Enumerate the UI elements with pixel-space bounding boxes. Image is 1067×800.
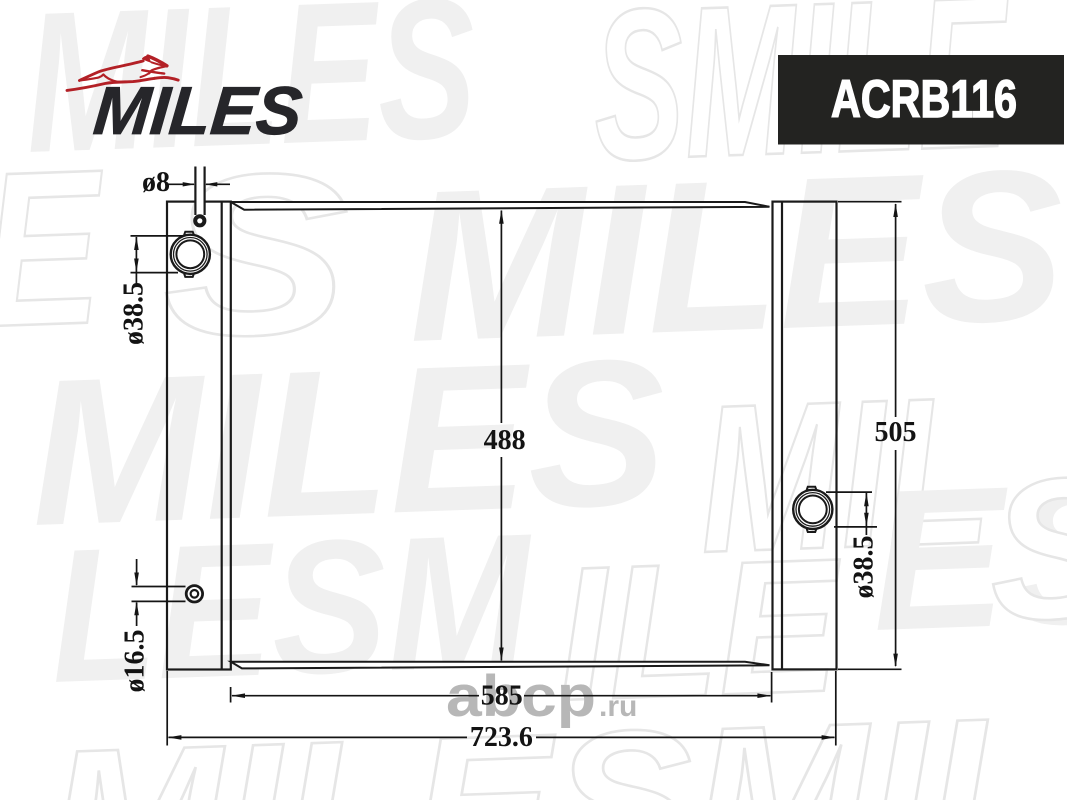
svg-text:585: 585: [481, 681, 523, 712]
svg-text:S: S: [986, 435, 1067, 663]
svg-text:ø38.5: ø38.5: [118, 282, 149, 345]
svg-text:ACRB116: ACRB116: [831, 70, 1017, 129]
svg-text:ø8: ø8: [142, 167, 170, 198]
svg-text:505: 505: [875, 417, 917, 448]
svg-text:MILES: MILES: [91, 73, 306, 149]
svg-text:488: 488: [484, 425, 526, 456]
svg-text:ø16.5: ø16.5: [119, 630, 150, 693]
svg-text:ø38.5: ø38.5: [848, 536, 879, 599]
svg-text:723.6: 723.6: [470, 722, 533, 753]
